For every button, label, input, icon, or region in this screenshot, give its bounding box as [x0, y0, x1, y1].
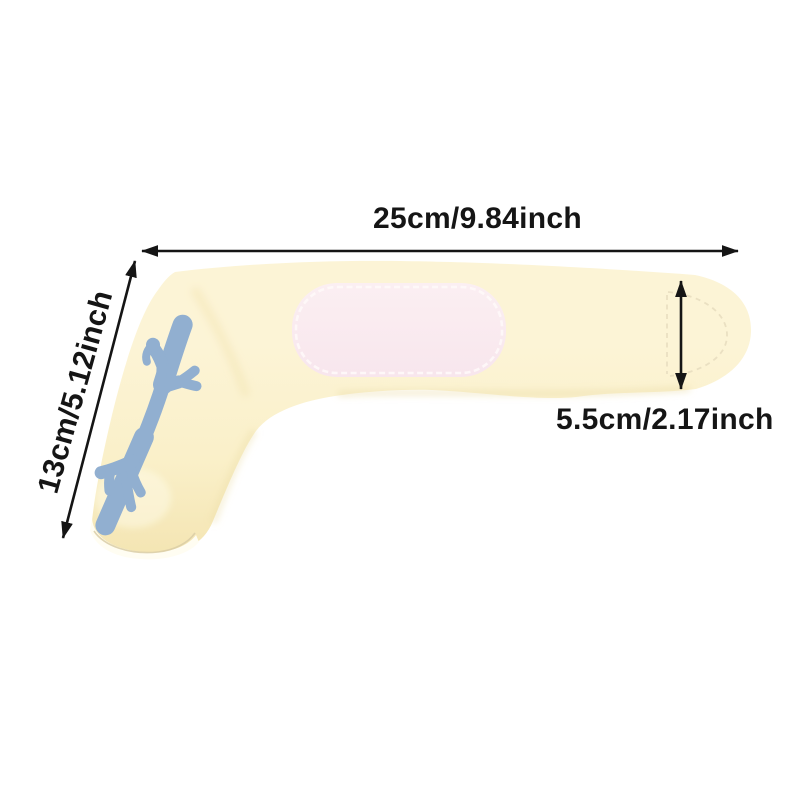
product-dimension-image: 25cm/9.84inch 13cm/5.12inch 5.5cm/2.17in…	[0, 0, 800, 800]
depth-dimension-label: 5.5cm/2.17inch	[556, 405, 774, 435]
product-photo-canvas	[0, 0, 800, 800]
pad-surface	[292, 283, 506, 377]
inner-pad	[292, 283, 506, 377]
width-dimension-label: 25cm/9.84inch	[373, 204, 582, 234]
